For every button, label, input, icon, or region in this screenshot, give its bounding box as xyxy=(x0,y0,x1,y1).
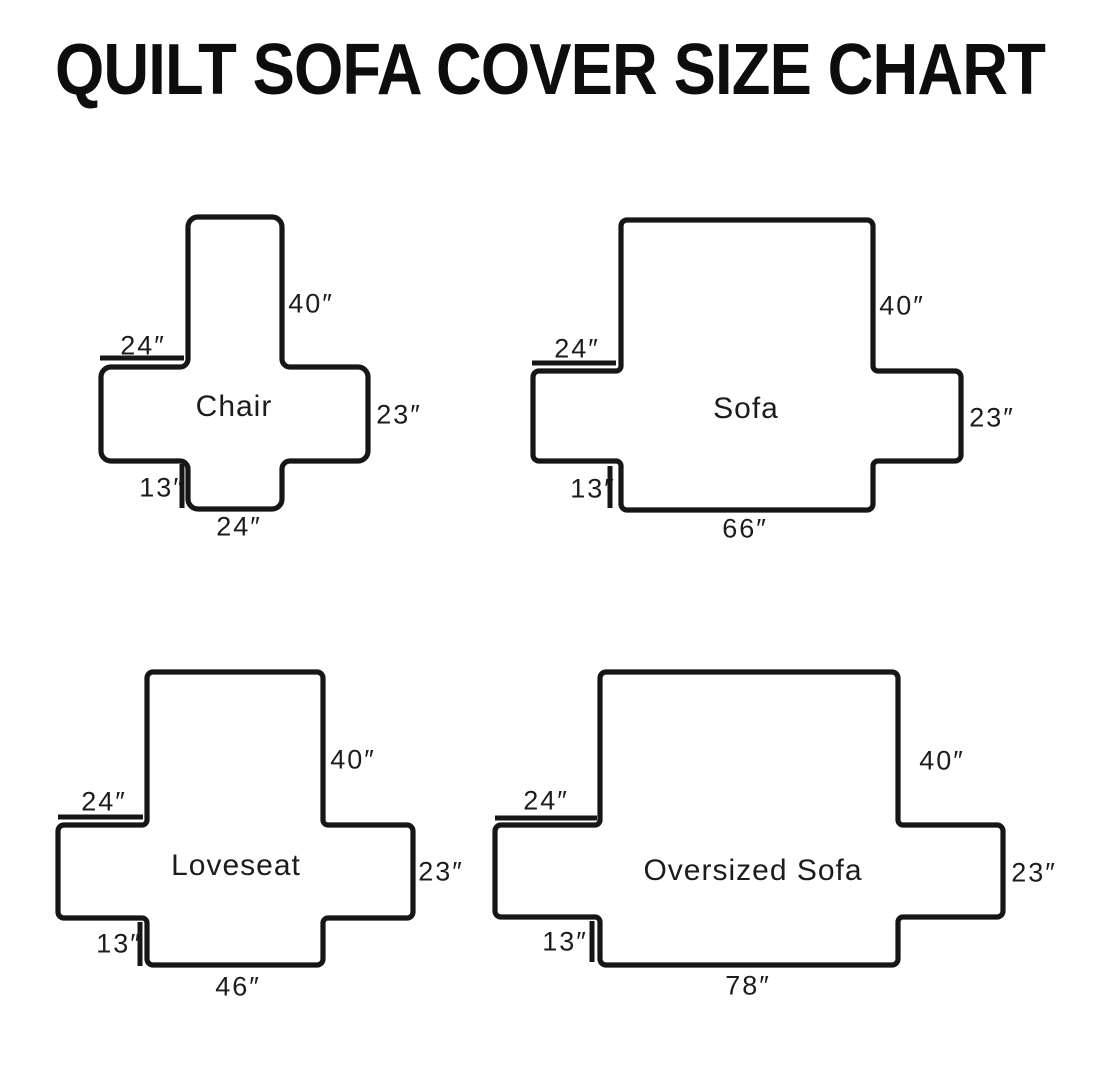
loveseat-back-height-label: 40″ xyxy=(330,747,376,774)
chair-arm-width-label: 24″ xyxy=(120,333,166,360)
loveseat-side-height-label: 23″ xyxy=(418,859,464,886)
chair-skirt-drop-label: 13″ xyxy=(139,475,185,502)
oversized-sofa-name-label: Oversized Sofa xyxy=(643,856,862,886)
chair-side-height-label: 23″ xyxy=(376,402,422,429)
sofa-name-label: Sofa xyxy=(713,394,779,424)
chair-name-label: Chair xyxy=(196,392,273,422)
loveseat-name-label: Loveseat xyxy=(171,851,301,881)
chair-base-width-label: 24″ xyxy=(216,514,262,541)
sofa-arm-width-label: 24″ xyxy=(554,336,600,363)
size-chart-page: QUILT SOFA COVER SIZE CHART 40″ 24″ Chai… xyxy=(0,0,1100,1092)
oversized-sofa-skirt-drop-label: 13″ xyxy=(542,929,588,956)
loveseat-arm-width-label: 24″ xyxy=(81,789,127,816)
sofa-side-height-label: 23″ xyxy=(969,405,1015,432)
oversized-sofa-arm-width-label: 24″ xyxy=(523,788,569,815)
loveseat-base-width-label: 46″ xyxy=(215,974,261,1001)
loveseat-skirt-drop-label: 13″ xyxy=(96,931,142,958)
chair-back-height-label: 40″ xyxy=(288,291,334,318)
sofa-base-width-label: 66″ xyxy=(722,516,768,543)
oversized-sofa-back-height-label: 40″ xyxy=(919,748,965,775)
chair-cover-outline xyxy=(101,217,368,509)
oversized-sofa-side-height-label: 23″ xyxy=(1011,860,1057,887)
sofa-skirt-drop-label: 13″ xyxy=(570,476,616,503)
oversized-sofa-base-width-label: 78″ xyxy=(725,973,771,1000)
sofa-back-height-label: 40″ xyxy=(879,293,925,320)
